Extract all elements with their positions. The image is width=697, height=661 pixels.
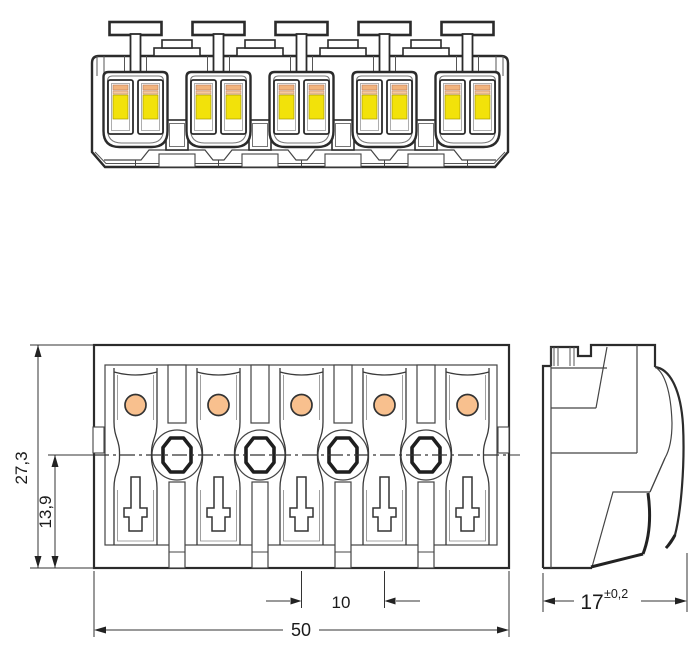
mounting-foot [159,154,195,167]
front-pole-5 [436,22,500,147]
dim-label-27-3: 27,3 [12,451,31,484]
arrow-right [675,598,687,605]
arrow-up [35,345,42,357]
front-pole-3 [270,22,334,147]
front-pole-1 [104,22,168,147]
front-pole-4 [353,22,417,147]
side-cavity-lines [551,345,637,453]
side-button-plates [554,347,574,366]
arrow-right [497,627,509,634]
arrow-down [52,556,59,568]
arrow-up [52,455,59,467]
extension-lines [30,345,94,568]
drawing-svg: 27,3 13,9 10 50 [0,0,697,661]
front-pole-2 [187,22,251,147]
mounting-foot [325,154,361,167]
arrow-left [543,598,555,605]
edge-notch-right [498,427,509,453]
fixing-flange-inner [650,367,672,492]
mounting-foot [408,154,444,167]
dim-pole-pitch: 10 [266,571,420,612]
front-view [92,22,508,167]
arrow-down [35,556,42,568]
dim-centerline-offset: 13,9 [36,455,59,568]
dim-label-10: 10 [332,593,351,612]
arrow-right [291,598,302,605]
dim-overall-depth: 27,3 [12,345,94,568]
arrow-left [385,598,396,605]
latch-wedge-thick-edge [591,493,675,567]
technical-drawing: 27,3 13,9 10 50 [0,0,697,661]
arrow-left [94,627,106,634]
dim-label-50: 50 [291,620,311,640]
side-view [543,345,684,568]
latch-wedge [592,458,665,567]
dim-label-tolerance: ±0,2 [604,587,628,601]
mounting-foot [242,154,278,167]
dim-label-17: 17 [580,591,603,614]
dim-label-13-9: 13,9 [36,495,55,528]
plan-view [48,345,520,568]
edge-notch-left [93,427,104,453]
side-outline [543,345,655,568]
